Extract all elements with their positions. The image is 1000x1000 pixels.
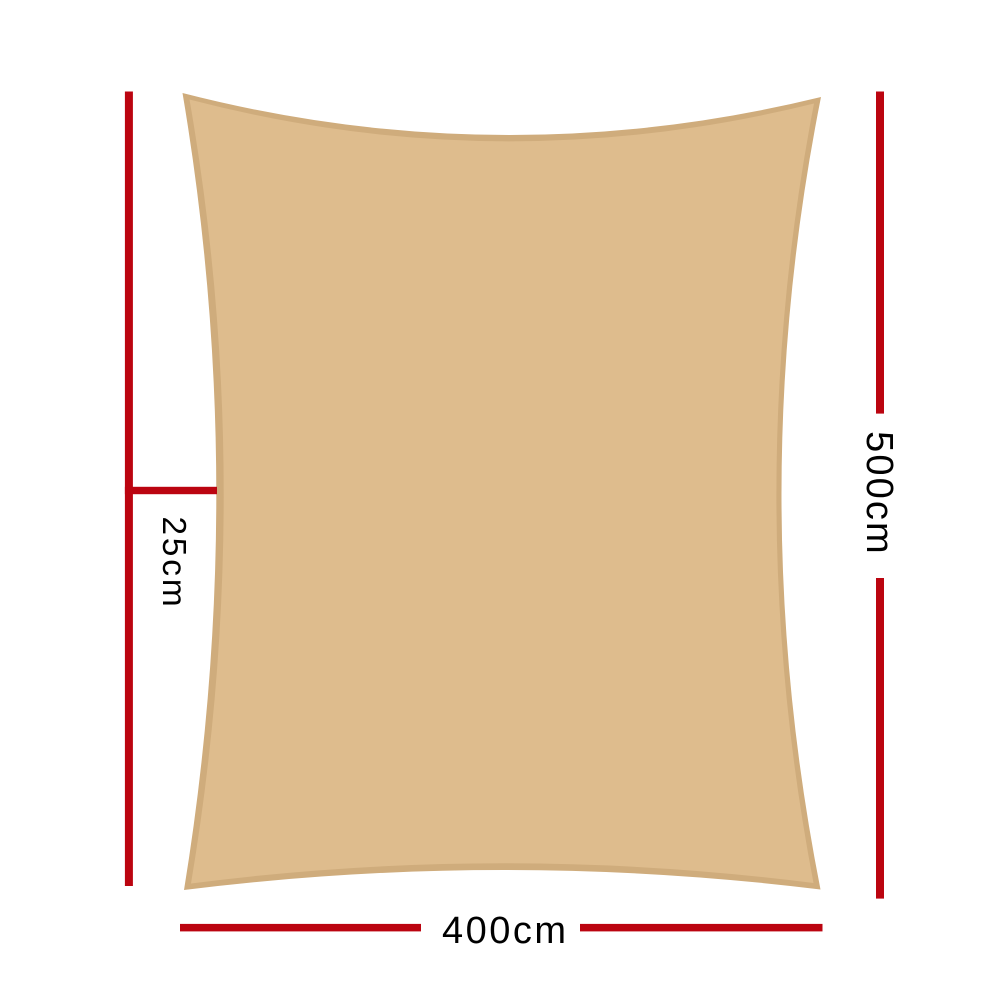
svg-text:25cm: 25cm xyxy=(155,516,192,606)
svg-text:400cm: 400cm xyxy=(442,910,566,952)
svg-text:500cm: 500cm xyxy=(858,431,900,554)
